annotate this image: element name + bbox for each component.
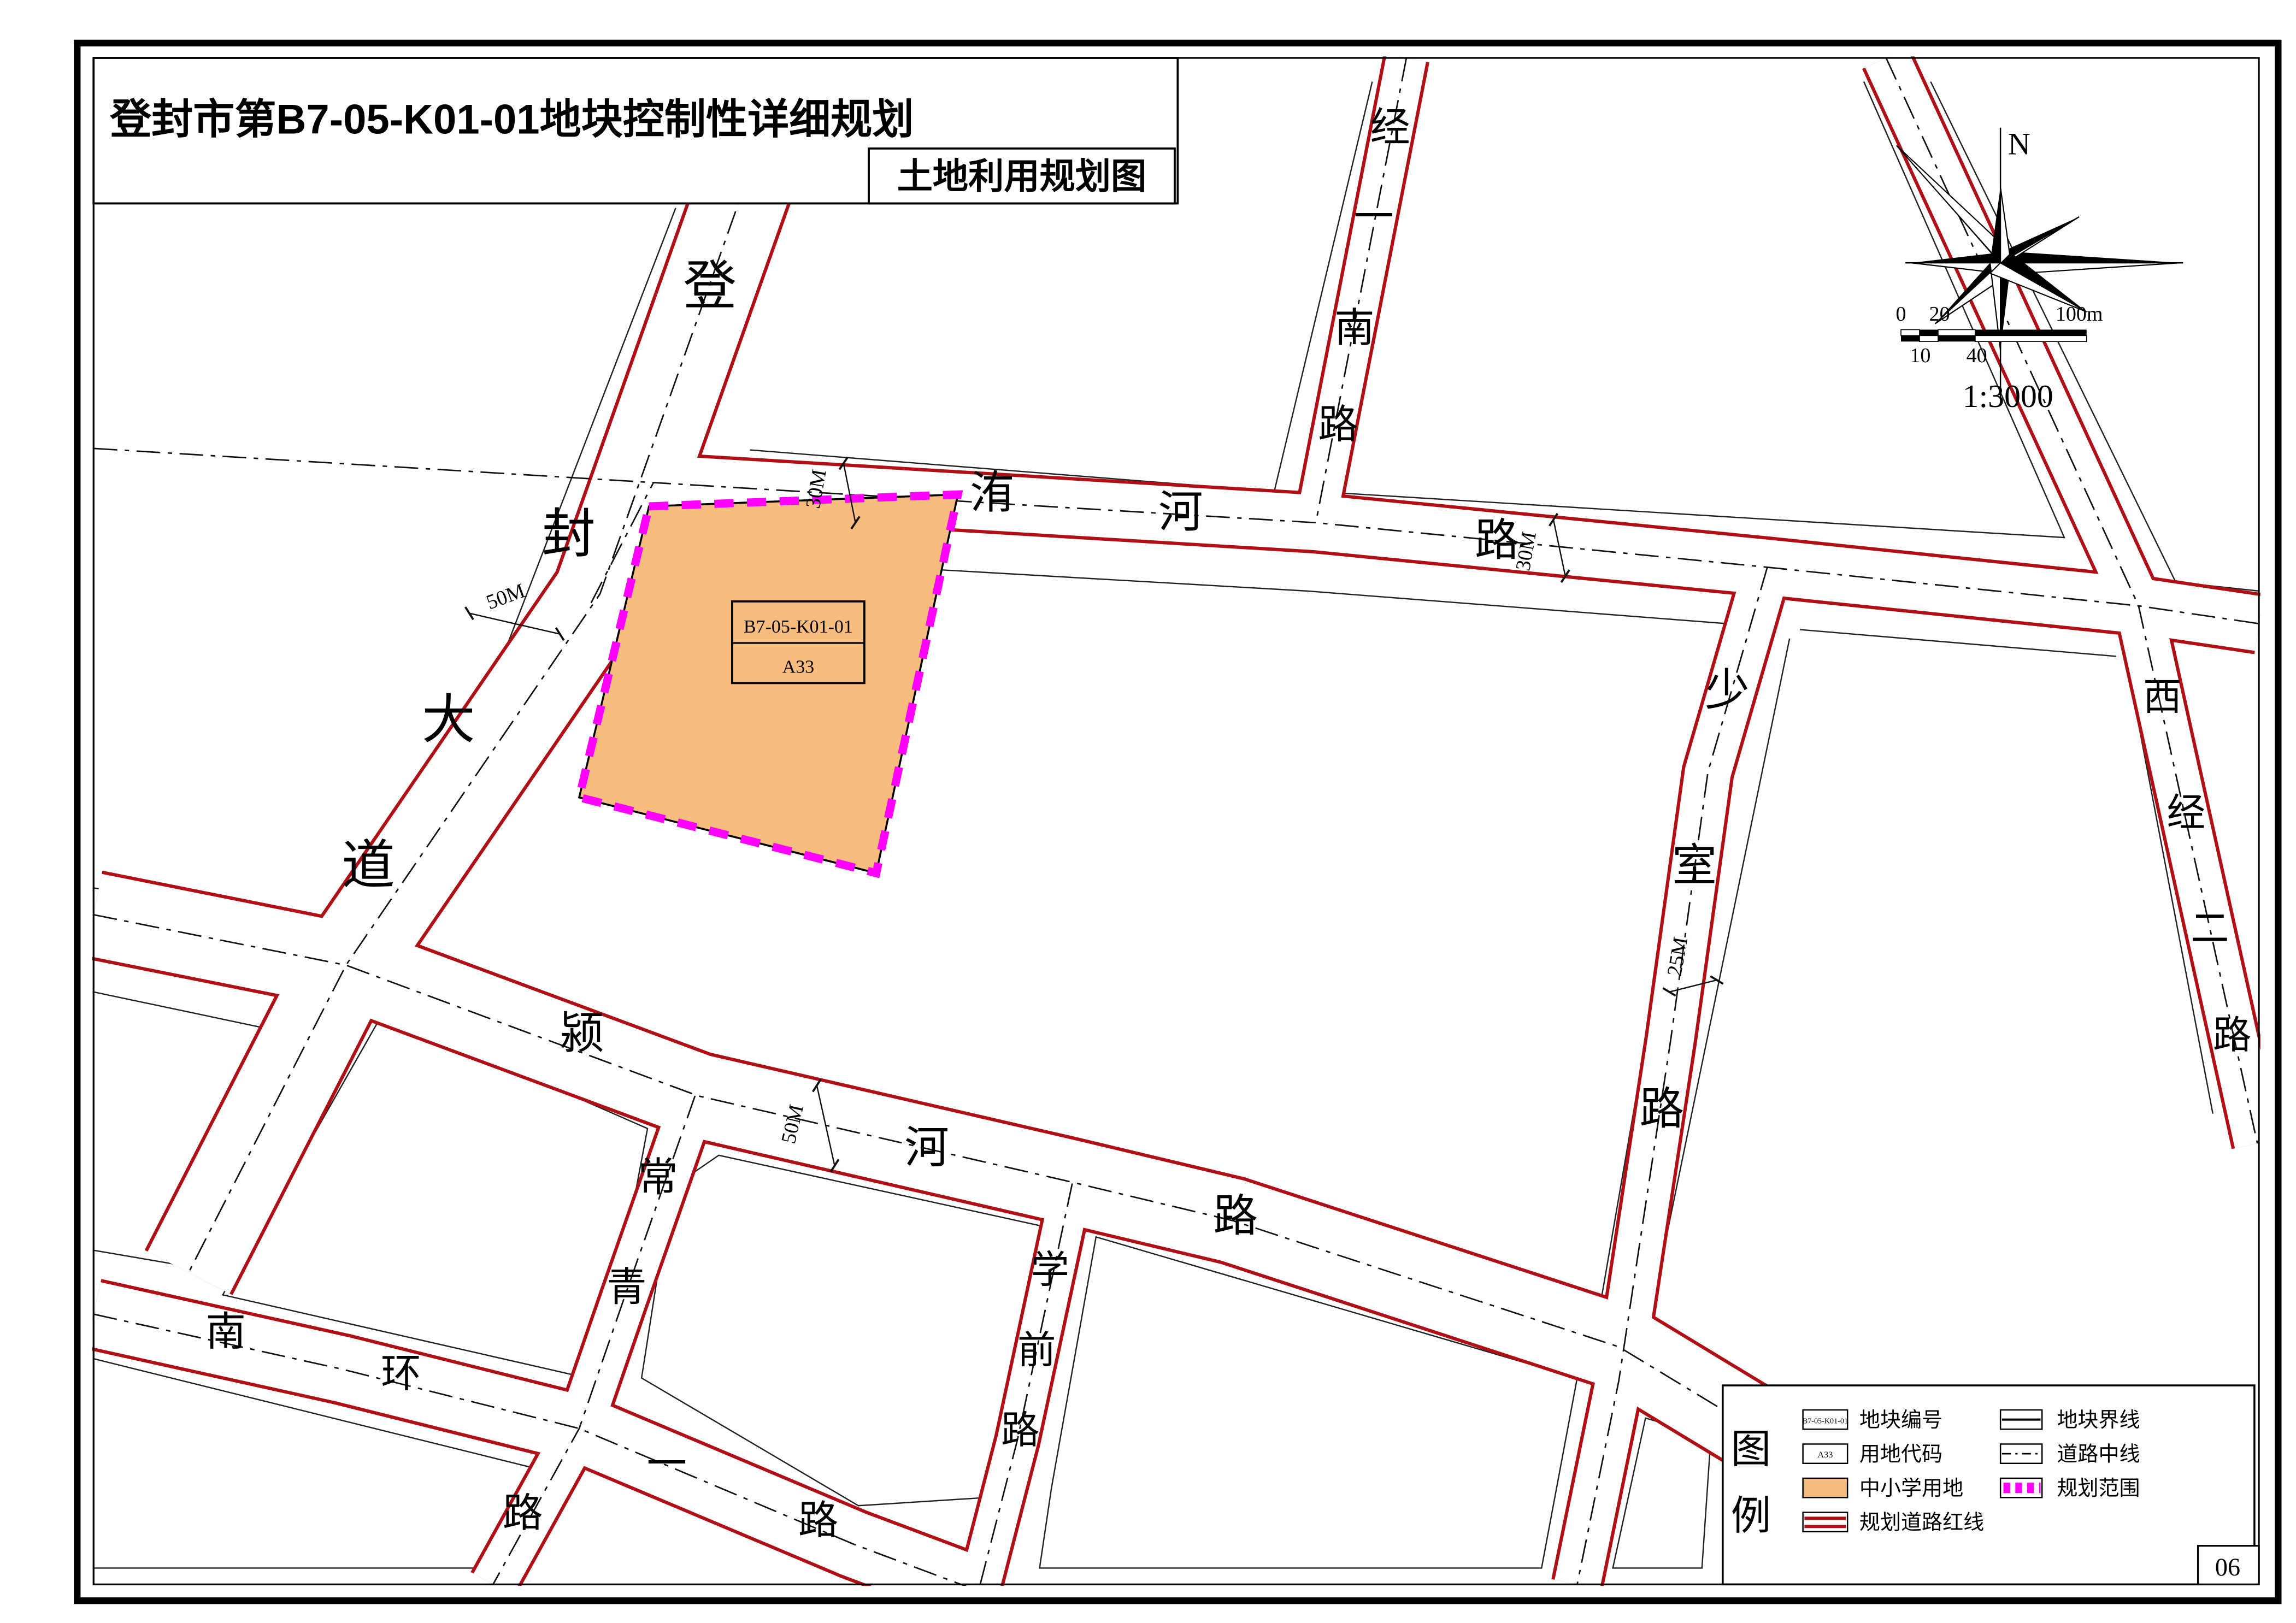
xijinger-road-name-char: 二 [2191, 907, 2229, 950]
legend-label-road-centerline: 道路中线 [2057, 1443, 2140, 1466]
legend-item-parcel-boundary: 地块界线 [2000, 1409, 2140, 1432]
dengfeng-avenue-name-char: 大 [422, 691, 475, 750]
xueqian-road-name-char: 路 [1001, 1409, 1040, 1452]
page-number: 06 [2215, 1553, 2240, 1581]
scale-tick-100: 100m [2056, 303, 2103, 326]
jingyi-south-road-name-char: 南 [1334, 306, 1374, 350]
nanhuanyi-road-name-char: 环 [381, 1351, 421, 1396]
page-number-box: 06 [2198, 1546, 2259, 1585]
xueqian-road-name-char: 前 [1017, 1329, 1056, 1372]
shaoshi-road-name-char: 室 [1672, 841, 1717, 890]
nanhuanyi-road-name-char: 路 [798, 1498, 838, 1543]
changqing-road-name-char: 常 [638, 1155, 678, 1200]
jingyi-south-road-name-char: 一 [1353, 194, 1393, 239]
legend-item-planning-scope: 规划范围 [2000, 1477, 2140, 1500]
jingyi-south-road-name-char: 经 [1370, 105, 1410, 150]
compass-north-label: N [2008, 127, 2030, 162]
legend-item-road-redline: 规划道路红线 [1803, 1512, 1985, 1535]
legend-header-char-2: 例 [1731, 1494, 1771, 1538]
weihe-road-name-char: 路 [1475, 516, 1520, 565]
changqing-road-name-char: 路 [503, 1491, 543, 1535]
parcel-landuse-code: A33 [782, 657, 814, 677]
dengfeng-avenue-name-char: 道 [342, 836, 395, 895]
legend-label-parcel-boundary: 地块界线 [2057, 1409, 2140, 1432]
dengfeng-avenue-name-char: 封 [542, 505, 596, 564]
road-centerline [93, 448, 654, 483]
xueqian-road-name-char: 学 [1031, 1249, 1069, 1292]
scale-tick-40: 40 [1967, 344, 1987, 367]
legend-item-road-centerline: 道路中线 [2000, 1443, 2140, 1466]
legend-label-landuse-code: 用地代码 [1859, 1443, 1942, 1466]
scale-tick-10: 10 [1910, 344, 1930, 367]
legend: 图 例 B7-05-K01-01 地块编号 A33 用地代码 中小学用地 规划道… [1723, 1385, 2254, 1584]
legend-item-parcel-code: B7-05-K01-01 地块编号 [1803, 1409, 1942, 1432]
legend-label-road-redline: 规划道路红线 [1859, 1512, 1984, 1535]
changqing-road-name-char: 青 [607, 1265, 646, 1309]
shaoshi-road-name-char: 路 [1640, 1084, 1685, 1134]
plan-sheet: 30M50M30M25M50M登封大道洧河路经一南路少室路西经二路颍河路常青路南… [0, 0, 2296, 1623]
xijinger-road-name-char: 路 [2213, 1014, 2252, 1057]
weihe-road-name-char: 河 [1158, 487, 1203, 537]
jingyi-south-road-name-char: 路 [1318, 403, 1358, 447]
scale-tick-20: 20 [1929, 303, 1950, 326]
legend-label-school-land: 中小学用地 [1859, 1477, 1963, 1500]
school-land-swatch [1803, 1478, 1848, 1497]
nanhuanyi-road-name-char: 南 [205, 1310, 245, 1354]
yinghe-road-name-char: 路 [1214, 1191, 1258, 1241]
legend-header-char-1: 图 [1731, 1427, 1771, 1471]
dimension-tick [1710, 976, 1723, 984]
map-layer: 30M50M30M25M50M登封大道洧河路经一南路少室路西经二路颍河路常青路南… [93, 58, 2259, 1589]
land-use-plan-map: 30M50M30M25M50M登封大道洧河路经一南路少室路西经二路颍河路常青路南… [0, 0, 2296, 1623]
title-block: 登封市第B7-05-K01-01地块控制性详细规划 土地利用规划图 [93, 58, 1178, 203]
xueqian-road-carriageway [980, 1183, 1073, 1584]
yinghe-road-name-char: 河 [904, 1123, 949, 1172]
weihe-road-name-char: 洧 [970, 468, 1015, 518]
parcel-code: B7-05-K01-01 [744, 617, 853, 637]
page-title: 登封市第B7-05-K01-01地块控制性详细规划 [109, 97, 914, 143]
nanhuanyi-road-name-char: 一 [647, 1442, 687, 1486]
legend-swatch-parcel-code-text: B7-05-K01-01 [1803, 1417, 1848, 1425]
xijinger-road-name-char: 经 [2167, 792, 2206, 834]
xijinger-road-name-char: 西 [2143, 676, 2182, 718]
dengfeng-avenue-name-char: 登 [683, 257, 737, 316]
map-subtitle: 土地利用规划图 [897, 156, 1147, 196]
legend-label-planning-scope: 规划范围 [2057, 1477, 2140, 1500]
yinghe-road-name-char: 颍 [560, 1008, 605, 1058]
parcel-boundary-line [1800, 630, 2116, 657]
legend-label-parcel-code: 地块编号 [1859, 1409, 1942, 1432]
scale-tick-0: 0 [1896, 303, 1906, 326]
shaoshi-road-name-char: 少 [1705, 665, 1750, 715]
scale-ratio: 1:3000 [1963, 378, 2053, 414]
legend-item-school-land: 中小学用地 [1803, 1477, 1964, 1500]
legend-item-landuse-code: A33 用地代码 [1803, 1443, 1942, 1466]
legend-swatch-landuse-code-text: A33 [1817, 1449, 1833, 1460]
